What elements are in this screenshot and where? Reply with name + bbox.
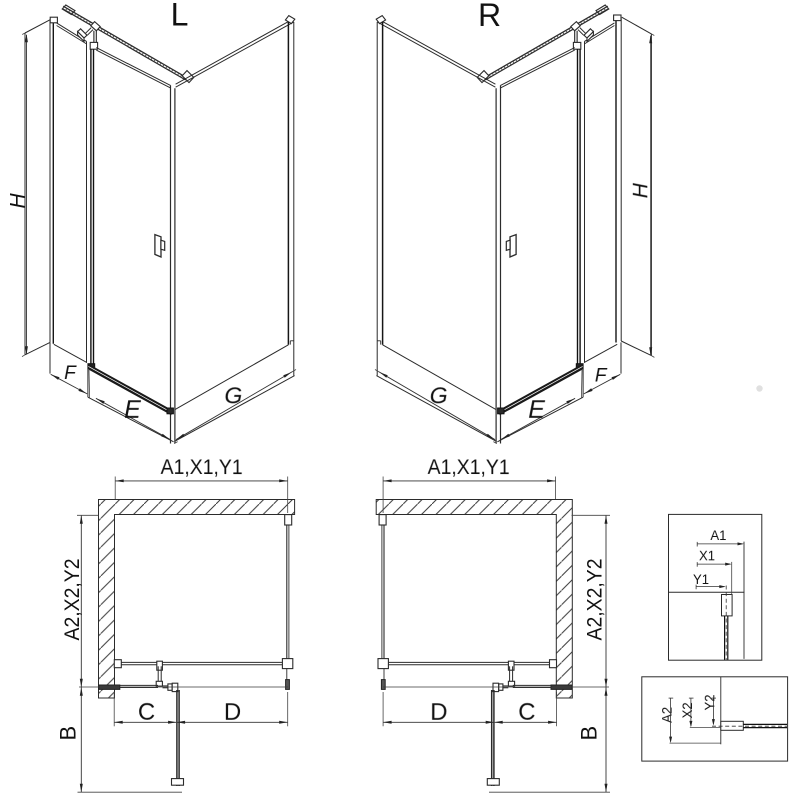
svg-text:A2: A2	[659, 707, 675, 723]
svg-text:E: E	[124, 396, 141, 424]
svg-text:C: C	[518, 699, 535, 726]
svg-text:Y2: Y2	[701, 694, 717, 710]
svg-text:A1,X1,Y1: A1,X1,Y1	[161, 456, 243, 479]
svg-text:A2,X2,Y2: A2,X2,Y2	[584, 559, 607, 641]
svg-text:D: D	[430, 699, 447, 726]
svg-text:L: L	[171, 0, 189, 33]
svg-text:H: H	[629, 182, 652, 198]
svg-text:X1: X1	[699, 547, 715, 563]
svg-text:R: R	[478, 0, 501, 33]
svg-text:A2,X2,Y2: A2,X2,Y2	[61, 559, 84, 641]
svg-text:F: F	[595, 365, 608, 386]
svg-text:G: G	[430, 382, 448, 408]
svg-text:B: B	[577, 726, 602, 741]
svg-text:H: H	[7, 193, 30, 209]
svg-text:X2: X2	[679, 702, 695, 718]
svg-text:F: F	[64, 363, 77, 384]
svg-text:B: B	[56, 726, 81, 741]
svg-text:A1: A1	[710, 527, 726, 543]
svg-text:E: E	[528, 396, 545, 424]
svg-text:C: C	[138, 699, 155, 726]
svg-text:D: D	[224, 699, 241, 726]
svg-text:A1,X1,Y1: A1,X1,Y1	[428, 456, 510, 479]
svg-text:G: G	[224, 382, 242, 408]
svg-text:Y1: Y1	[693, 571, 709, 587]
